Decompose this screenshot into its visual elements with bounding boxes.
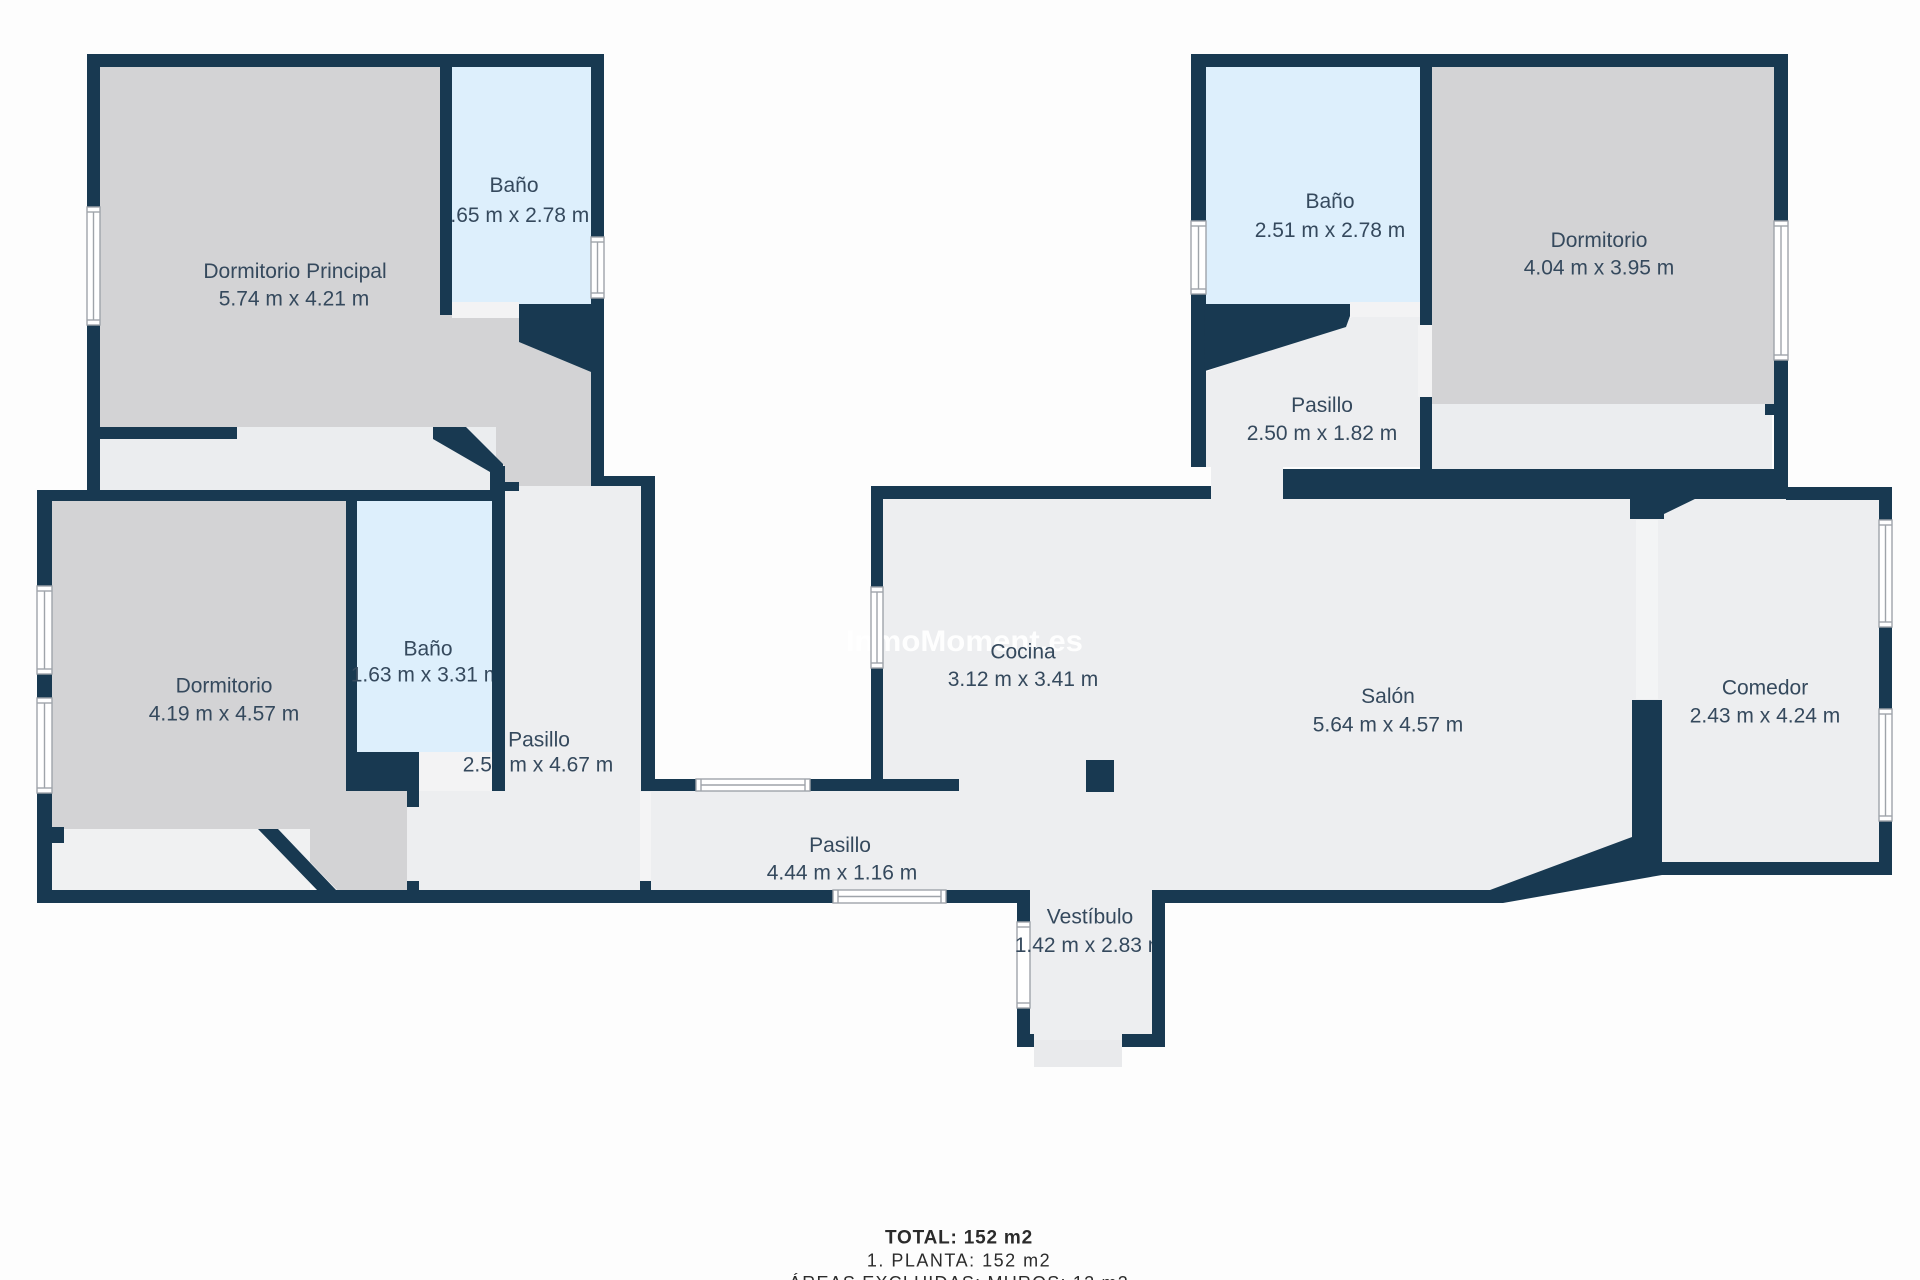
- svg-text:2.43 m x 4.24 m: 2.43 m x 4.24 m: [1690, 705, 1841, 728]
- svg-text:1. PLANTA: 152 m2: 1. PLANTA: 152 m2: [867, 1251, 1051, 1271]
- svg-text:Pasillo: Pasillo: [809, 834, 871, 857]
- svg-text:1.42 m x 2.83 m: 1.42 m x 2.83 m: [1015, 934, 1166, 957]
- svg-text:Dormitorio Principal: Dormitorio Principal: [203, 260, 386, 283]
- svg-text:Pasillo: Pasillo: [508, 729, 570, 752]
- svg-text:Baño: Baño: [1305, 190, 1354, 213]
- svg-text:5.64 m x 4.57 m: 5.64 m x 4.57 m: [1313, 714, 1464, 737]
- svg-text:Baño: Baño: [403, 638, 452, 661]
- svg-text:3.12 m x 3.41 m: 3.12 m x 3.41 m: [948, 668, 1099, 691]
- svg-text:Salón: Salón: [1361, 685, 1415, 708]
- svg-text:TOTAL: 152 m2: TOTAL: 152 m2: [885, 1228, 1033, 1249]
- svg-text:2.50 m x 1.82 m: 2.50 m x 1.82 m: [1247, 422, 1398, 445]
- svg-text:Vestíbulo: Vestíbulo: [1047, 906, 1133, 929]
- svg-text:2.52 m x 4.67 m: 2.52 m x 4.67 m: [463, 754, 614, 777]
- svg-text:ÁREAS EXCLUIDAS: MUROS: 12 m2: ÁREAS EXCLUIDAS: MUROS: 12 m2: [789, 1273, 1129, 1280]
- svg-text:4.19 m x 4.57 m: 4.19 m x 4.57 m: [149, 703, 300, 726]
- svg-text:4.04 m x 3.95 m: 4.04 m x 3.95 m: [1524, 257, 1675, 280]
- svg-text:Comedor: Comedor: [1722, 677, 1808, 700]
- svg-text:1.63 m x 3.31 m: 1.63 m x 3.31 m: [351, 664, 502, 687]
- svg-text:1.65 m x 2.78 m: 1.65 m x 2.78 m: [439, 204, 590, 227]
- svg-text:Dormitorio: Dormitorio: [176, 675, 273, 698]
- svg-text:2.51 m x 2.78 m: 2.51 m x 2.78 m: [1255, 219, 1406, 242]
- svg-text:4.44 m x 1.16 m: 4.44 m x 1.16 m: [767, 862, 918, 885]
- svg-text:Pasillo: Pasillo: [1291, 394, 1353, 417]
- svg-text:5.74 m x 4.21 m: 5.74 m x 4.21 m: [219, 288, 370, 311]
- svg-text:Baño: Baño: [489, 174, 538, 197]
- svg-text:Dormitorio: Dormitorio: [1551, 229, 1648, 252]
- svg-text:Cocina: Cocina: [990, 641, 1056, 664]
